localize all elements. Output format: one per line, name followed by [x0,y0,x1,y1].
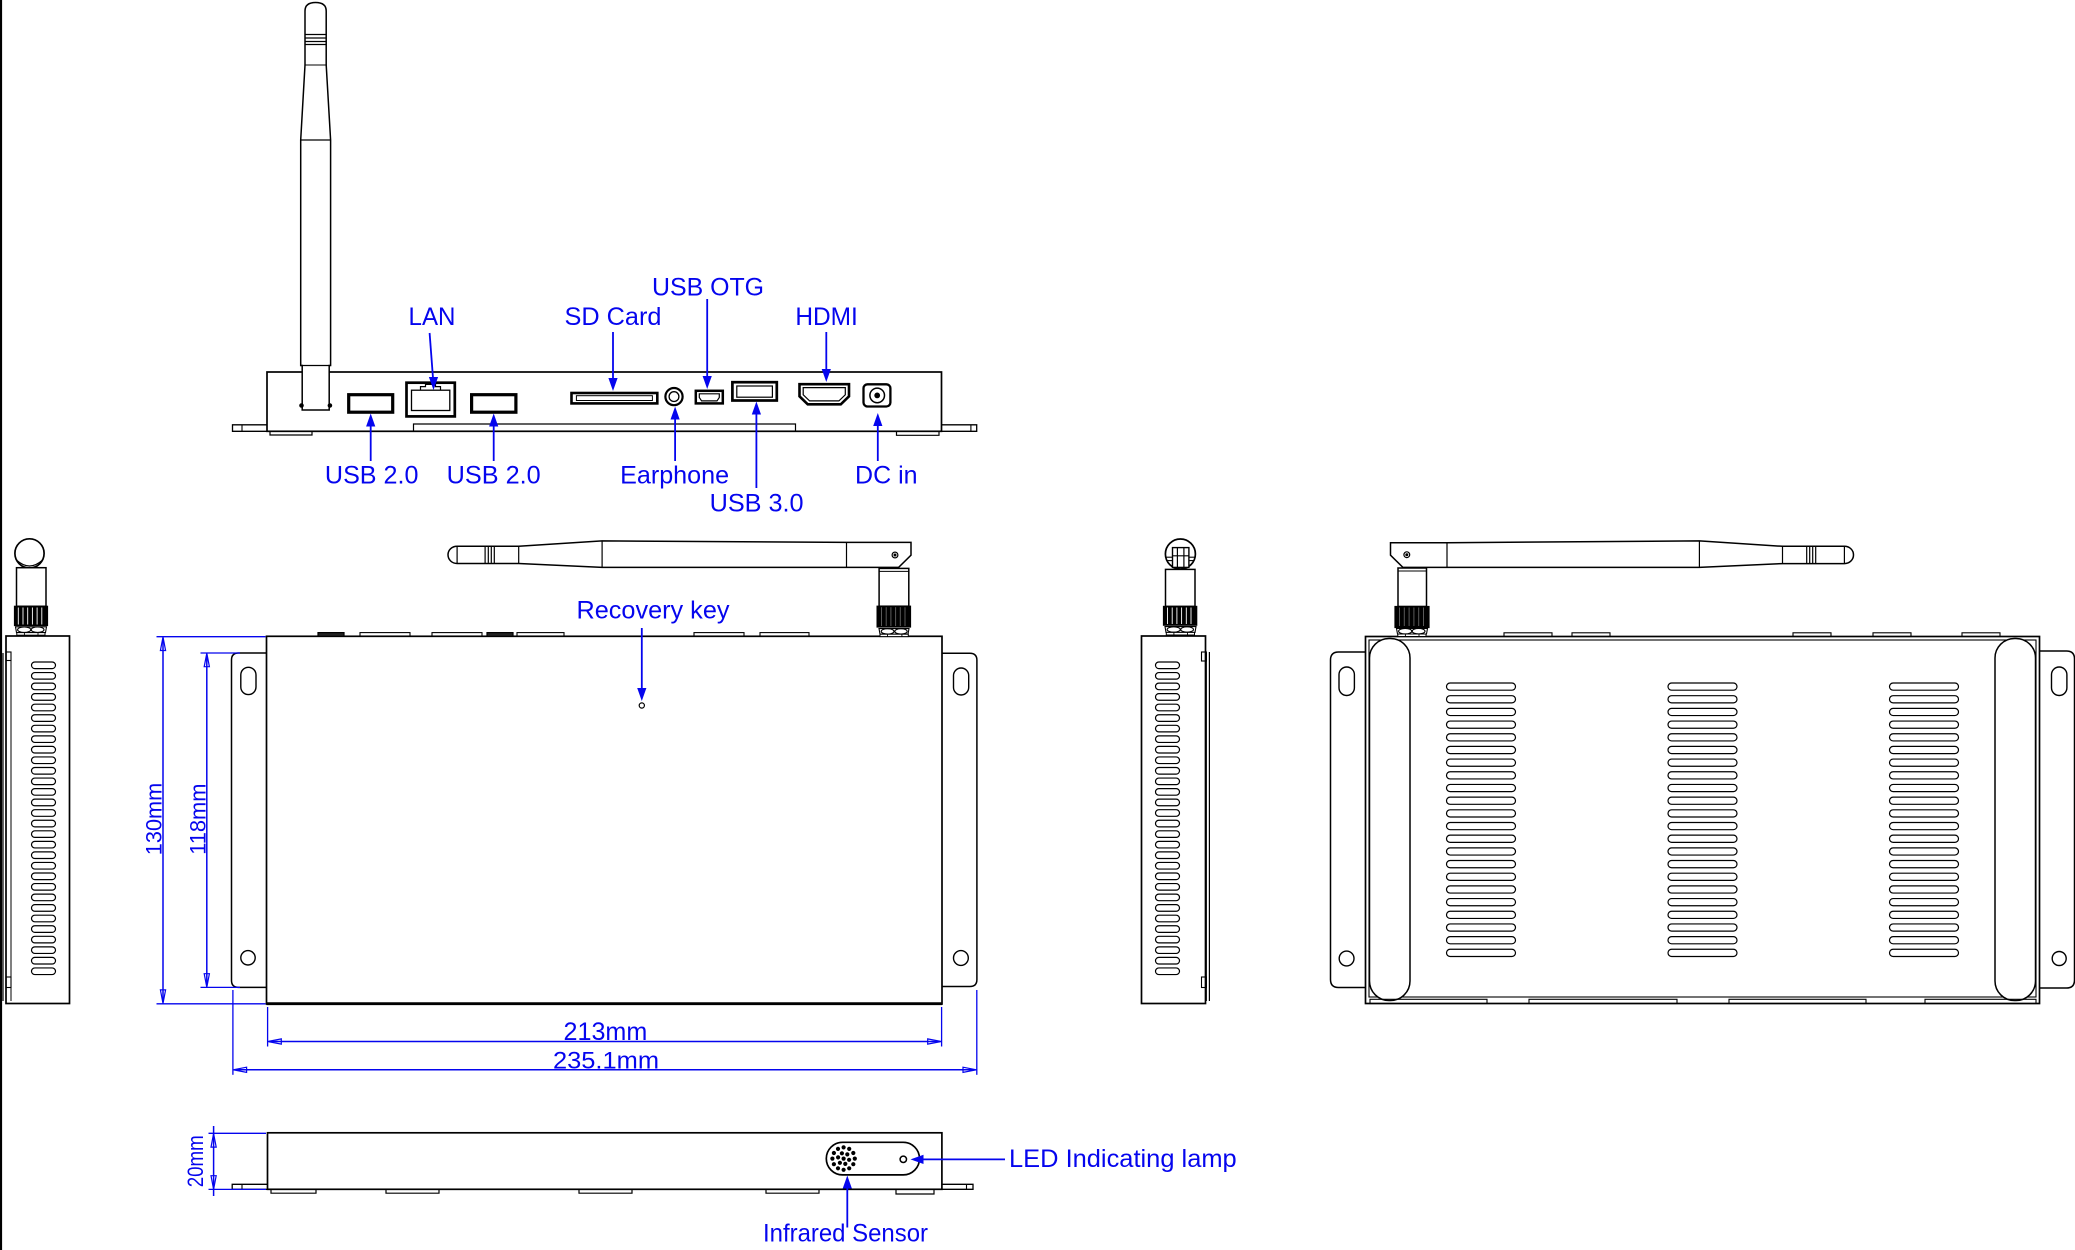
svg-text:DC in: DC in [855,462,918,490]
svg-text:213mm: 213mm [564,1018,648,1046]
svg-text:235.1mm: 235.1mm [553,1048,659,1075]
svg-text:SD Card: SD Card [565,303,662,331]
svg-text:HDMI: HDMI [795,303,858,331]
svg-text:USB 2.0: USB 2.0 [325,462,419,490]
svg-text:USB OTG: USB OTG [652,274,764,302]
svg-text:LED Indicating lamp: LED Indicating lamp [1009,1145,1237,1173]
svg-text:20mm: 20mm [183,1135,208,1187]
svg-text:Infrared Sensor: Infrared Sensor [763,1220,928,1248]
svg-text:USB 3.0: USB 3.0 [710,490,804,518]
svg-text:130mm: 130mm [141,783,166,855]
svg-text:118mm: 118mm [185,784,210,855]
svg-text:Earphone: Earphone [620,462,729,490]
svg-text:LAN: LAN [409,303,456,331]
svg-text:USB 2.0: USB 2.0 [447,462,541,490]
svg-text:Recovery key: Recovery key [577,597,730,625]
